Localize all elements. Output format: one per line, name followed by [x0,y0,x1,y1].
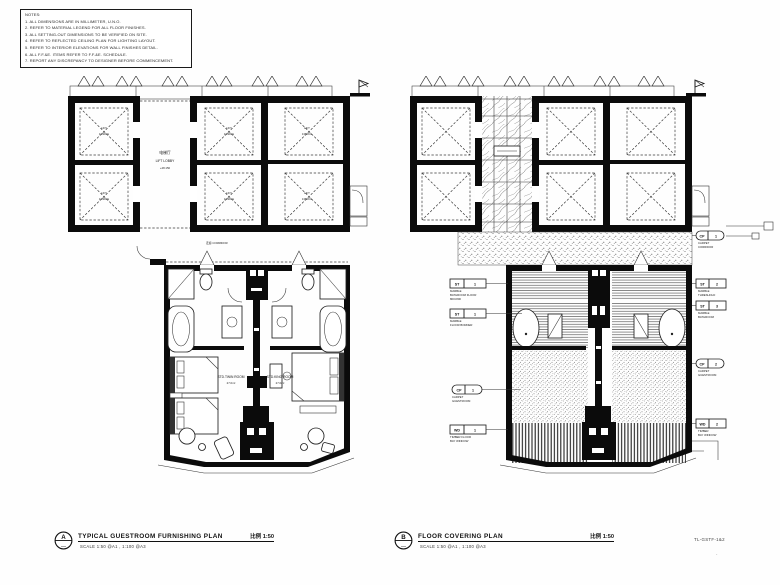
svg-text:LIFT: LIFT [226,191,232,195]
bathtub [320,306,346,352]
toilet [302,274,314,290]
svg-text:电梯厅: 电梯厅 [159,150,171,155]
vanity [222,306,242,338]
svg-text:CP: CP [700,363,706,367]
svg-text:—: — [401,544,406,550]
plan-b-floor-covering-drawing: ST 1 MARBLE BATHROOM FLOOR 800×800 ST 1 … [396,76,780,482]
svg-text:+48.150: +48.150 [160,166,171,170]
svg-text:GUESTROOM: GUESTROOM [698,373,717,377]
svg-text:1350KG: 1350KG [302,197,312,201]
lift-door-opening [190,122,197,138]
core-side-vestibule [692,186,709,226]
svg-text:ST: ST [700,305,705,309]
review-mark: · [716,552,718,558]
plan-b-title-text: FLOOR COVERING PLAN [418,533,503,540]
svg-text:1350KG: 1350KG [224,132,234,136]
plan-a-scale: 比例 1:50 [250,532,274,540]
svg-text:THRESHOLD: THRESHOLD [698,293,715,297]
lift-door-opening [190,186,197,202]
svg-text:LIFT: LIFT [304,126,310,130]
lift-door-opening [133,186,140,202]
lift-lobby: 电梯厅 LIFT LOBBY +48.150 [140,101,190,228]
lift-door-opening [475,186,482,202]
plan-a-title-block: A — TYPICAL GUESTROOM FURNISHING PLAN 比例… [54,530,286,556]
svg-text:1350KG: 1350KG [224,197,234,201]
plan-a-detail-bubble: A — [54,531,74,551]
svg-text:3: 3 [716,305,718,309]
svg-text:LIFT: LIFT [304,191,310,195]
lobby-marble-finish [482,96,532,232]
vanity [272,306,292,338]
note-line: 5. REFER TO INTERIOR ELEVATIONS FOR WALL… [25,45,187,52]
nightstand [170,393,182,398]
svg-text:1: 1 [715,235,717,239]
note-line: 7. REPORT ANY DISCREPANCY TO DESIGNER BE… [25,58,187,65]
plan-a-title-text: TYPICAL GUESTROOM FURNISHING PLAN [78,533,223,540]
svg-text:27.0m²: 27.0m² [227,381,236,385]
svg-text:1: 1 [474,313,476,317]
svg-text:ST: ST [455,313,460,317]
svg-text:WD: WD [700,423,706,427]
svg-text:800×800: 800×800 [450,297,461,301]
bathtub [513,309,539,347]
finish-tags-right: CP 1 CARPET CORRIDOR ST 2 MARBLE THRESHO… [692,222,773,460]
finish-tag: CP 1 [452,385,482,394]
twin-beds [170,357,218,434]
lift-door-opening [532,186,539,202]
elevator-core [410,96,709,232]
facade-louver-band [70,76,332,99]
plan-a-furnishing-drawing: LIFT1350KG LIFT1350KG LIFT1350KG LIFT135… [54,76,386,482]
finish-tag: ST 1 [450,309,486,318]
svg-text:A: A [61,534,66,541]
corridor: 走廊 CORRIDOR [137,241,348,265]
svg-text:CP: CP [700,235,706,239]
finish-tag: CP 2 [696,359,724,368]
svg-text:B: B [401,534,406,541]
note-line: 6. ALL F.F.&E. ITEMS REFER TO F.F.&E. SC… [25,52,187,59]
note-line: 4. REFER TO REFLECTED CEILING PLAN FOR L… [25,38,187,45]
note-line: NOTES: [25,12,187,19]
svg-text:LIFT: LIFT [226,126,232,130]
svg-text:1350KG: 1350KG [99,132,109,136]
finish-tag: WD 1 [450,425,486,434]
bathtub [168,306,194,352]
timber-deck-left [512,423,588,463]
plan-b-scale: 比例 1:50 [590,532,614,540]
lift-door-opening [475,122,482,138]
svg-text:1350KG: 1350KG [302,132,312,136]
plan-b-detail-bubble: B — [394,531,414,551]
section-marker [686,80,706,97]
bathroom-left [164,269,244,352]
svg-text:ST: ST [455,283,460,287]
note-line: 1. ALL DIMENSIONS ARE IN MILLIMETER, U.N… [25,19,187,26]
svg-text:LIFT LOBBY: LIFT LOBBY [156,159,175,163]
svg-text:1350KG: 1350KG [99,197,109,201]
svg-text:GUESTROOM: GUESTROOM [452,399,471,403]
lift-door-opening [532,122,539,138]
guestroom-floor-finishes [500,265,696,473]
entry-door-swing [292,251,306,265]
svg-text:2: 2 [716,423,718,427]
svg-text:ST: ST [700,283,705,287]
drawing-sheet: NOTES: 1. ALL DIMENSIONS ARE IN MILLIMET… [0,0,780,585]
drawing-number: TL-GSTF-1&2 [694,537,725,542]
finish-tag: CP 1 [696,231,724,240]
corridor-carpet-finish [458,232,692,265]
king-room-label: STD.KING ROOM [267,375,294,379]
finish-tag: ST 2 [696,279,726,288]
svg-text:CP: CP [457,389,463,393]
svg-text:WD: WD [454,429,460,433]
bathtub [659,309,685,347]
twin-room-label: STD.TWIN ROOM [217,375,244,379]
bathroom-right [270,269,350,352]
svg-text:LIFT: LIFT [101,126,107,130]
general-notes-block: NOTES: 1. ALL DIMENSIONS ARE IN MILLIMET… [20,9,192,68]
guestrooms: STD.TWIN ROOM 27.0m² STD.KING ROOM 27.0m… [158,265,354,473]
central-service-spine [240,265,274,460]
finish-tag: ST 3 [696,301,726,310]
note-line: 2. REFER TO MATERIAL LEGEND FOR ALL FLOO… [25,25,187,32]
finish-tag: WD 2 [696,419,726,428]
entry-door-swing [200,251,214,265]
svg-text:27.0m²: 27.0m² [276,381,285,385]
svg-text:CORRIDOR: CORRIDOR [698,245,713,249]
svg-text:1: 1 [474,429,476,433]
finish-tag: ST 1 [450,279,486,288]
svg-text:LIFT: LIFT [101,191,107,195]
toilet [200,274,212,290]
svg-text:—: — [61,544,66,550]
svg-text:1: 1 [474,283,476,287]
svg-text:BAY WINDOW: BAY WINDOW [698,433,717,437]
leader-lines [692,441,718,460]
core-side-vestibule [350,186,367,226]
facade-louver-band [412,76,674,99]
section-marker [350,80,370,97]
plan-a-scale-sub: SCALE 1:50 @A1 , 1:100 @A3 [80,544,146,549]
lift-door-opening [133,122,140,138]
guestroom-carpet-right [612,350,686,423]
svg-text:BAY WINDOW: BAY WINDOW [450,439,469,443]
plan-b-title-block: B — FLOOR COVERING PLAN 比例 1:50 SCALE 1:… [394,530,626,556]
note-line: 3. ALL SETTING-OUT DIMENSIONS TO BE VERI… [25,32,187,39]
svg-text:2: 2 [715,363,717,367]
bed-bench [300,406,336,413]
svg-text:BATHROOM: BATHROOM [698,315,715,319]
svg-text:1: 1 [472,389,474,393]
plan-b-scale-sub: SCALE 1:50 @A1 , 1:100 @A3 [420,544,486,549]
svg-text:FLOOR BORDER: FLOOR BORDER [450,323,472,327]
corridor-label: 走廊 CORRIDOR [206,241,228,245]
svg-text:2: 2 [716,283,718,287]
elevator-core: LIFT1350KG LIFT1350KG LIFT1350KG LIFT135… [68,96,367,232]
guestroom-carpet-left [512,350,588,423]
